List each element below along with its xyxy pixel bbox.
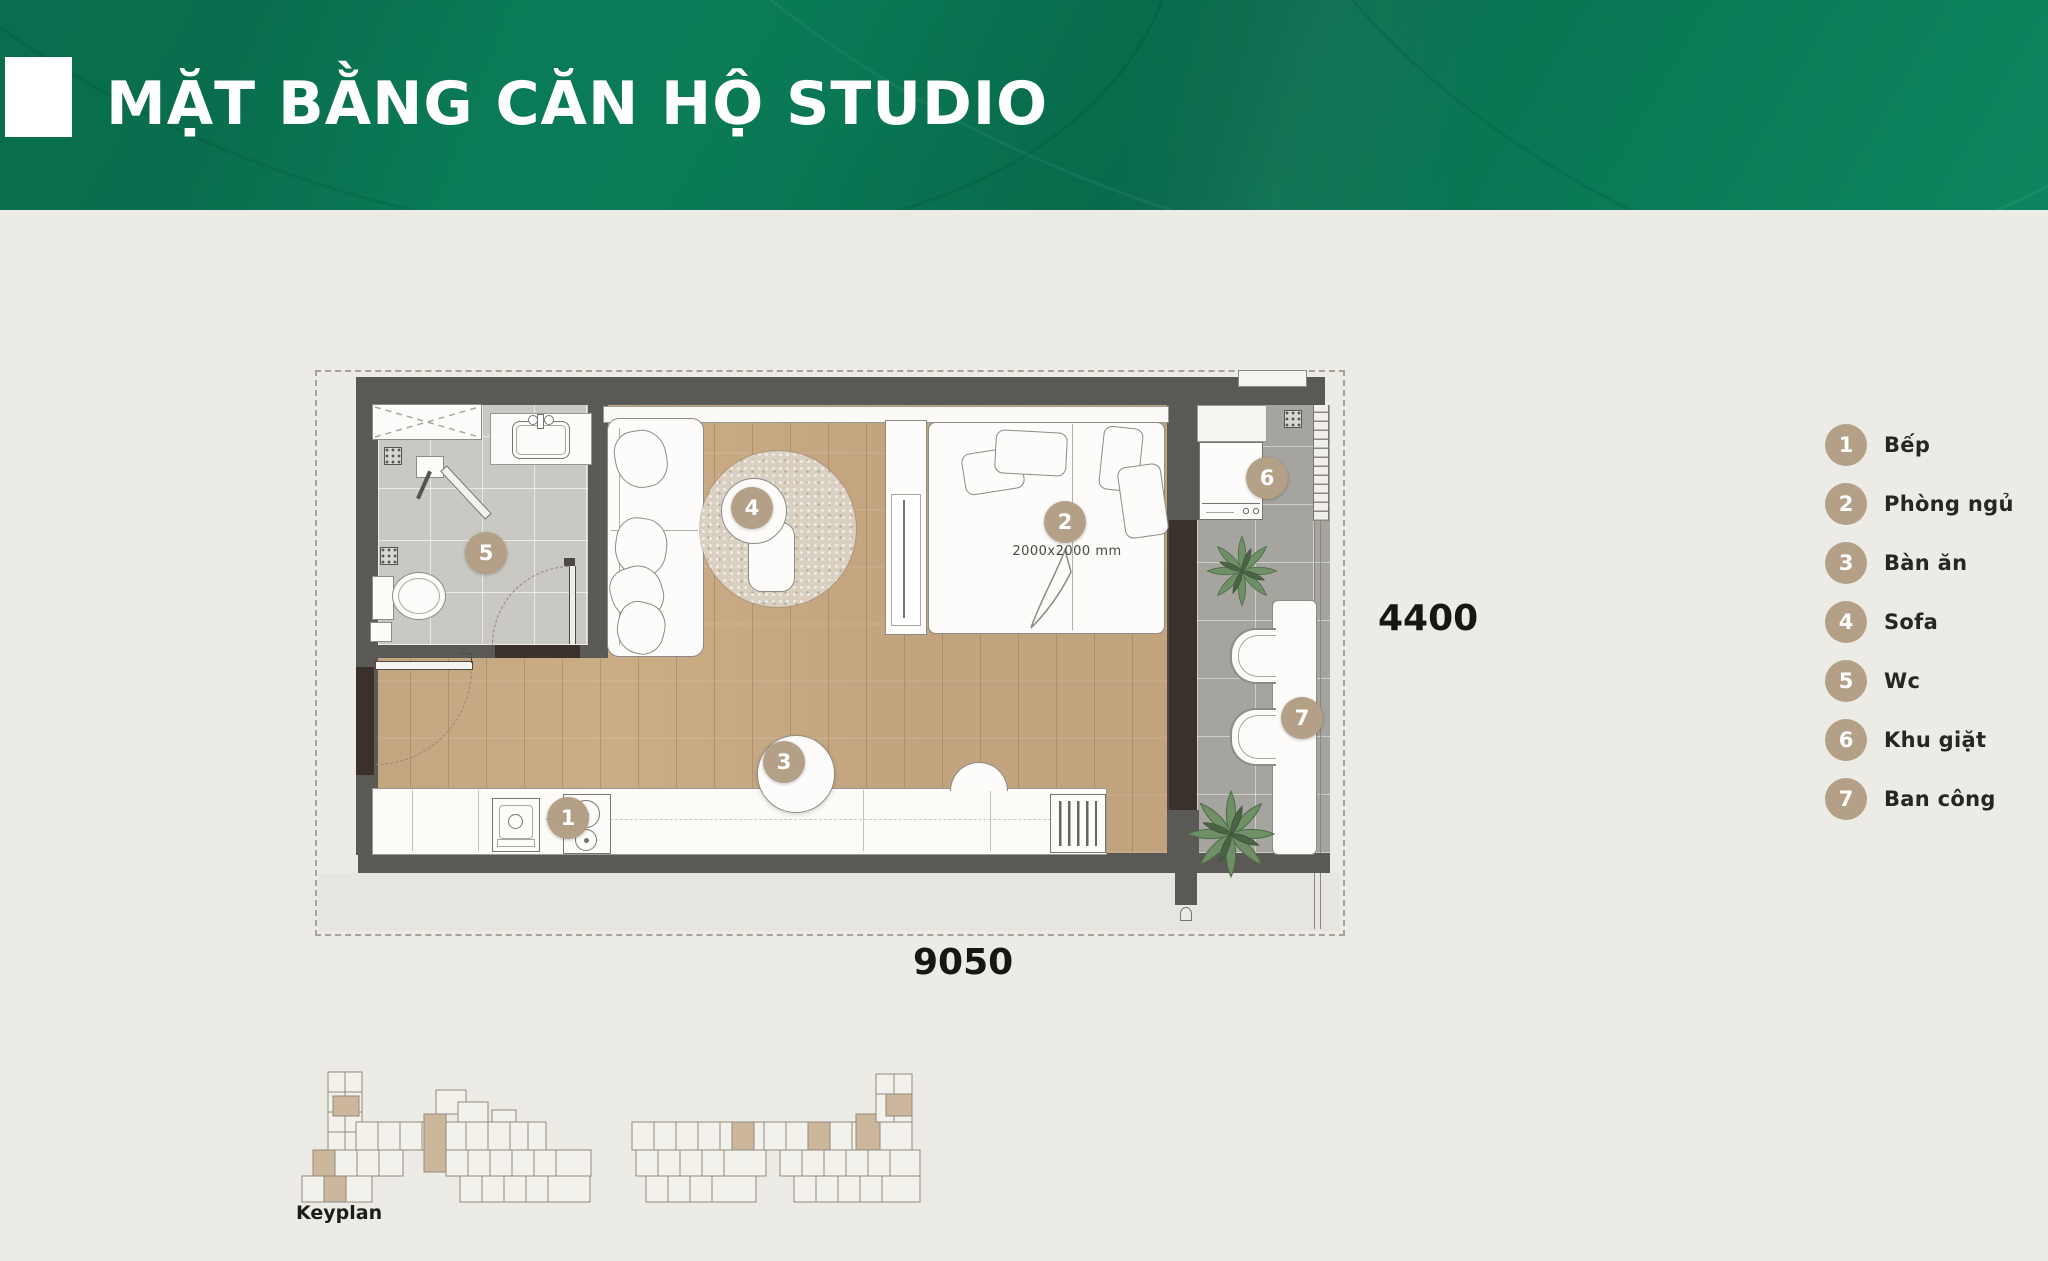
floor-drain-icon (380, 547, 398, 565)
slatted-cabinet (1050, 794, 1106, 853)
balcony-sliding-door (1167, 520, 1197, 810)
legend-number-badge: 4 (1825, 601, 1867, 643)
legend-label: Sofa (1884, 610, 1938, 634)
wall-top (356, 377, 1325, 405)
ac-ledge (1238, 370, 1307, 387)
legend-number-badge: 7 (1825, 778, 1867, 820)
plan-marker-dining: 3 (763, 741, 805, 783)
counter-divider (478, 790, 479, 851)
legend-item-wc: 5 Wc (1825, 660, 2045, 702)
plan-marker-laundry: 6 (1246, 457, 1288, 499)
legend-number-badge: 1 (1825, 424, 1867, 466)
shower-x-pattern (373, 405, 481, 439)
kitchen-sink (492, 798, 540, 852)
floor-drain-icon (384, 447, 402, 465)
plan-marker-kitchen: 1 (547, 797, 589, 839)
plan-marker-sofa: 4 (731, 487, 773, 529)
balcony-partition-wall (1167, 405, 1199, 520)
legend-label: Bàn ăn (1884, 551, 1967, 575)
bathroom-door-handle (564, 558, 575, 566)
keyplan-drawing (300, 1070, 940, 1206)
counter-centerline (545, 819, 1101, 820)
legend-label: Ban công (1884, 787, 1996, 811)
cabinet-slats (1059, 801, 1097, 846)
shower-tray (372, 404, 482, 440)
blanket-fold (1027, 548, 1079, 632)
legend-number-badge: 5 (1825, 660, 1867, 702)
plant-icon (1185, 788, 1277, 880)
laundry-counter (1197, 405, 1267, 442)
legend: 1 Bếp 2 Phòng ngủ 3 Bàn ăn 4 Sofa 5 Wc 6… (1825, 424, 2045, 837)
washing-machine-controls (1202, 503, 1260, 517)
toilet-tank (372, 576, 394, 620)
legend-number-badge: 6 (1825, 719, 1867, 761)
legend-number-badge: 2 (1825, 483, 1867, 525)
kitchen-counter (372, 788, 1107, 855)
entry-door-frame (356, 667, 374, 775)
balcony-glass-rail (1314, 873, 1321, 929)
legend-number-badge: 3 (1825, 542, 1867, 584)
dimension-width: 9050 (913, 942, 1013, 983)
keyplan-label: Keyplan (296, 1202, 382, 1224)
tv-cabinet-inner (891, 494, 921, 626)
sink-ledge (497, 839, 535, 847)
balcony-chair (1230, 708, 1276, 766)
balcony-louver-screen (1313, 405, 1329, 521)
page-title: MẶT BẰNG CĂN HỘ STUDIO (106, 48, 1506, 160)
title-accent-square (5, 57, 72, 137)
legend-label: Bếp (1884, 433, 1930, 457)
tv-screen-line (903, 500, 905, 618)
plant-icon (1205, 534, 1279, 608)
plan-marker-bedroom: 2 (1044, 501, 1086, 543)
plan-marker-wc: 5 (465, 532, 507, 574)
legend-label: Khu giặt (1884, 728, 1986, 752)
counter-divider (863, 790, 864, 851)
entry-door-leaf (375, 661, 473, 670)
floor-plan: 2000x2000 mm 1 2 3 4 5 6 7 (315, 370, 1345, 936)
legend-item-ban-an: 3 Bàn ăn (1825, 542, 2045, 584)
counter-divider (412, 790, 413, 851)
faucet-handle (544, 415, 554, 425)
balcony-chair (1230, 628, 1276, 684)
floor-drain-icon (1284, 410, 1302, 428)
bed-size-label: 2000x2000 mm (987, 544, 1147, 559)
legend-label: Wc (1884, 669, 1920, 693)
faucet-spout (537, 414, 544, 429)
pillow (994, 429, 1068, 477)
legend-item-sofa: 4 Sofa (1825, 601, 2045, 643)
bathroom-bin (370, 622, 392, 642)
door-closer-symbol (1180, 907, 1192, 921)
counter-divider (990, 790, 991, 851)
bathroom-door-leaf (569, 566, 576, 644)
bathroom-door-threshold (495, 645, 580, 658)
plan-marker-balcony: 7 (1281, 697, 1323, 739)
legend-item-ban-cong: 7 Ban công (1825, 778, 2045, 820)
legend-item-khu-giat: 6 Khu giặt (1825, 719, 2045, 761)
legend-item-bep: 1 Bếp (1825, 424, 2045, 466)
legend-label: Phòng ngủ (1884, 492, 2014, 516)
toilet-bowl (392, 572, 446, 620)
entry-door-handle (461, 653, 472, 663)
sink-drain (508, 814, 523, 829)
dimension-height: 4400 (1378, 598, 1478, 639)
legend-item-phong-ngu: 2 Phòng ngủ (1825, 483, 2045, 525)
